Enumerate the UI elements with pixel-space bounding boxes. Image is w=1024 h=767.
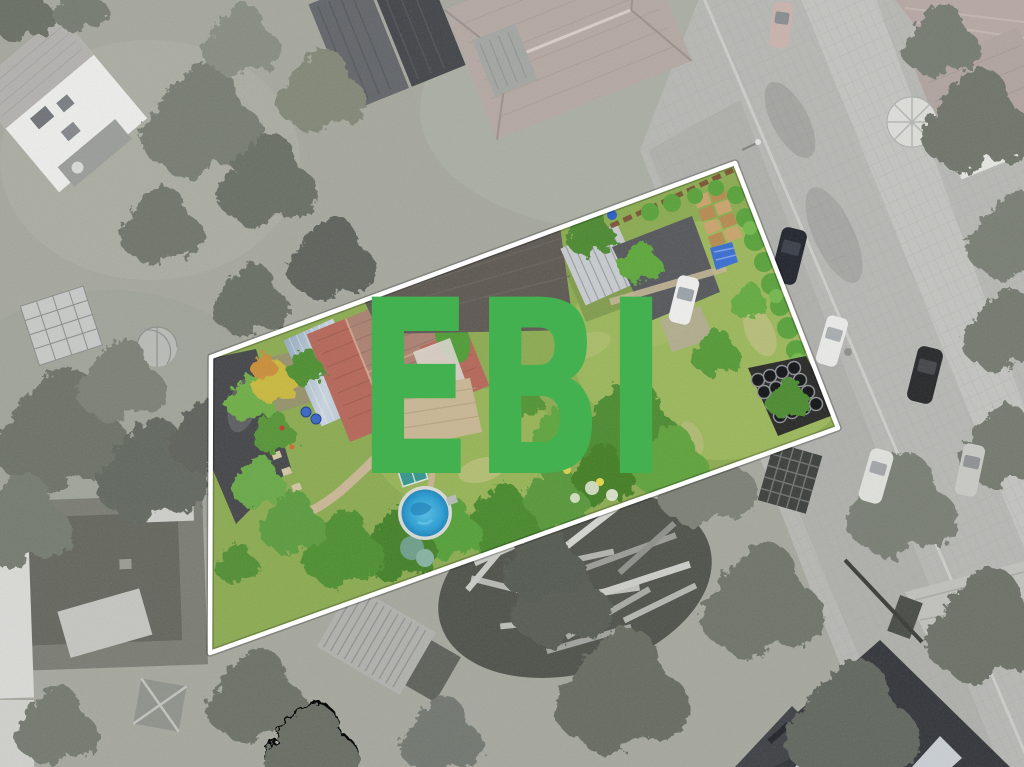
- aerial-photo: EBI: [0, 0, 1024, 767]
- watermark-text: EBI: [356, 249, 668, 531]
